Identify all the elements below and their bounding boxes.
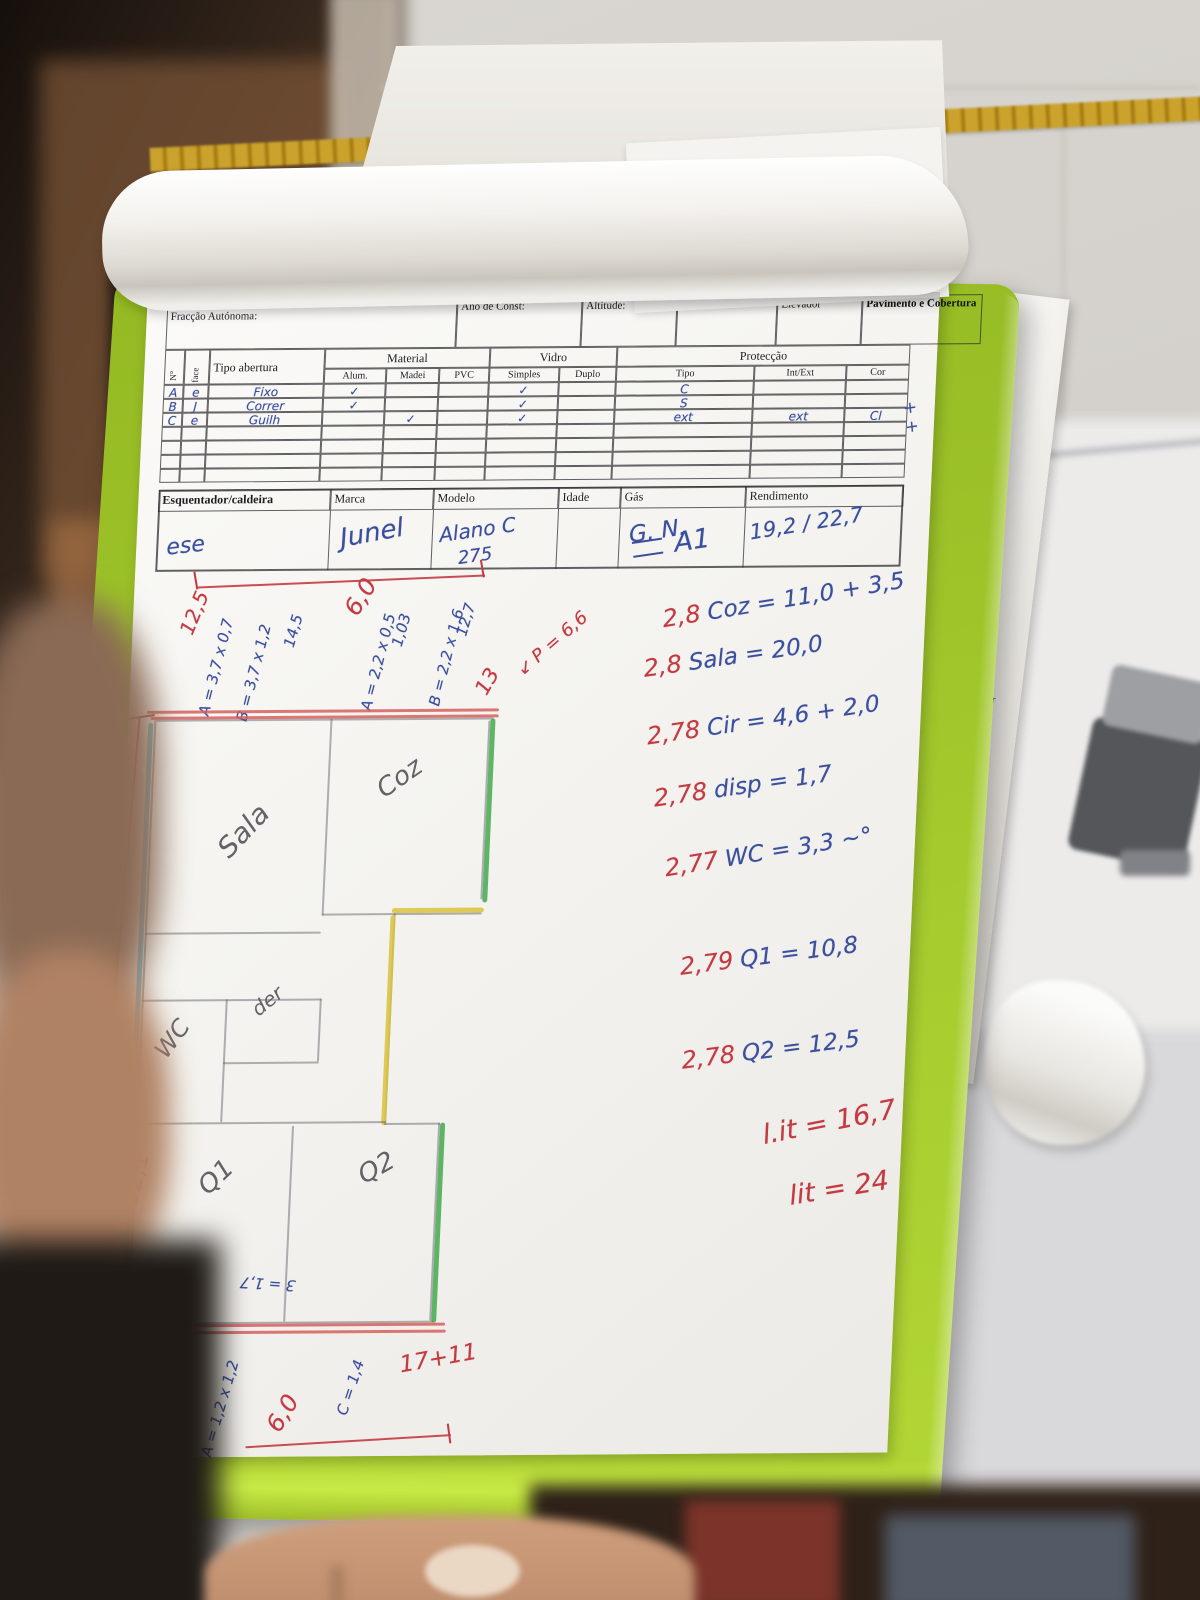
calc-height-prefix: 2,79: [679, 946, 735, 981]
calc-room-area: Coz = 11,0 + 3,5: [706, 568, 906, 626]
table-cell: [436, 439, 487, 453]
table-cell: ✓: [487, 410, 558, 424]
pencil-wall: [283, 1126, 294, 1322]
calc-height-prefix: 2,8: [661, 599, 702, 633]
table-cell: [434, 467, 485, 481]
table-cell: Guilh: [207, 412, 323, 427]
handwritten-entry: J: [193, 400, 197, 414]
table-cell: [753, 394, 846, 409]
total-line: lit = 24: [788, 1165, 891, 1212]
room-label-sala: Sala: [211, 797, 277, 864]
table-cell: [557, 410, 615, 424]
pencil-wall: [322, 719, 333, 916]
table-cell: [612, 451, 751, 466]
room-label-q1: Q1: [192, 1154, 240, 1201]
room-label-q2: Q2: [353, 1146, 400, 1191]
perimeter-value: P = 6,6: [528, 607, 592, 667]
side-measure: 14,5: [280, 612, 307, 649]
table-cell: [383, 425, 437, 439]
calc-room-area: Cir = 4,6 + 2,0: [706, 691, 881, 742]
table-cell: [750, 450, 843, 465]
calc-room-area: Q2 = 12,5: [741, 1026, 861, 1067]
heater-col-gas: Gás: [620, 486, 746, 509]
pencil-wall: [317, 999, 322, 1062]
table-cell: ✓: [384, 411, 438, 425]
survey-paper: Buach Olago Fracção Autónoma: Ano de Con…: [95, 284, 940, 1458]
bottom-left-shadow: [0, 1240, 220, 1600]
table-cell: [486, 438, 557, 452]
heater-col-idade: Idade: [558, 487, 621, 509]
table-cell: [843, 436, 907, 450]
table-cell: [321, 439, 384, 453]
a1-underline-marks: [632, 538, 663, 558]
table-cell: [845, 394, 909, 408]
table-cell: Cl: [844, 408, 908, 422]
handwritten-entry: ✓: [517, 397, 528, 411]
table-cell: [842, 450, 906, 464]
calc-line: 2,8Sala = 20,0: [642, 629, 824, 683]
tile-grout-vertical: [1062, 110, 1065, 460]
calc-line: 2,78disp = 1,7: [652, 759, 833, 813]
table-margin-note: + +: [903, 395, 936, 437]
red-crayon-line: [147, 708, 499, 713]
handwritten-entry: ext: [788, 409, 808, 423]
col-n: N°: [164, 350, 186, 385]
table-cell: ✓: [488, 396, 559, 410]
handwritten-entry: ✓: [517, 411, 528, 425]
col-n-label: N°: [168, 371, 178, 381]
table-cell: [613, 437, 752, 452]
rolled-over-page: [101, 154, 970, 312]
table-cell: [159, 469, 180, 483]
heater-col-esquentador: Esquentador/caldeira: [158, 489, 331, 512]
table-cell: J: [182, 399, 208, 413]
group-proteccao: Protecção: [617, 345, 911, 367]
table-cell: [181, 427, 207, 441]
wood-chair-red: [685, 1500, 840, 1600]
table-cell: [556, 438, 614, 452]
calc-height-prefix: 2,77: [663, 846, 719, 882]
col-tipo-abertura: Tipo abertura: [209, 349, 326, 385]
table-cell: [555, 452, 613, 466]
table-cell: [381, 467, 435, 481]
table-cell: Fixo: [208, 384, 324, 399]
table-cell: [319, 467, 382, 481]
plan-bottom-sum: 17+11: [398, 1339, 479, 1379]
heater-col-rendimento: Rendimento: [745, 485, 904, 508]
table-cell: [751, 422, 844, 437]
calc-room-area: disp = 1,7: [713, 761, 833, 804]
handwritten-entry: C: [168, 414, 177, 428]
table-cell: [320, 453, 383, 467]
handwritten-entry: e: [192, 386, 200, 400]
table-cell: [485, 452, 556, 466]
calc-height-prefix: 2,8: [642, 649, 683, 682]
handwritten-entry: A: [169, 386, 178, 400]
perimeter-note: ↙ P = 6,6: [513, 607, 592, 680]
calc-room-area: Q1 = 10,8: [739, 932, 859, 973]
sub-simples: Simples: [489, 367, 560, 382]
table-cell: [383, 439, 437, 453]
table-cell: [753, 380, 846, 395]
table-cell: [322, 411, 385, 425]
sub-cor: Cor: [846, 365, 910, 380]
table-cell: Correr: [207, 398, 323, 413]
table-cell: ✓: [488, 382, 559, 396]
handwritten-entry: ✓: [405, 412, 416, 426]
yellow-crayon-line: [392, 907, 484, 913]
sub-madei: Madei: [386, 368, 440, 383]
side-measure: 12,7: [452, 601, 479, 638]
plan-bottom-dimension-line: [246, 1434, 451, 1448]
table-cell: ✓: [323, 383, 386, 397]
calc-line: 2,78Q2 = 12,5: [681, 1024, 861, 1075]
table-cell: [205, 454, 321, 469]
table-cell: [160, 455, 181, 469]
table-cell: [611, 465, 750, 480]
table-cell: S: [615, 395, 754, 410]
phone-stand-foot: [1120, 850, 1190, 876]
table-cell: [558, 382, 616, 396]
table-cell: [484, 466, 555, 480]
table-cell: ✓: [322, 397, 385, 411]
total-line: l.it = 16,7: [761, 1094, 898, 1151]
photo-scene: 3 3 50 ambos guardar ModeDecPropCart v.1…: [0, 0, 1200, 1600]
table-cell: [845, 380, 909, 394]
calc-height-prefix: 2,78: [652, 777, 708, 813]
table-cell: C: [162, 413, 183, 427]
table-cell: [435, 453, 486, 467]
table-cell: [181, 441, 207, 455]
heater-col-marca: Marca: [330, 488, 434, 511]
col-face: face: [184, 350, 211, 385]
sub-tipo: Tipo: [616, 366, 755, 382]
table-cell: [436, 425, 487, 439]
table-cell: [385, 383, 439, 397]
plan-top-dimension-line: [198, 575, 485, 589]
sub-pvc: PVC: [439, 368, 490, 383]
plan-top-dim-tick-left: [193, 572, 198, 590]
fabric-gray: [885, 1515, 1135, 1600]
calc-height-prefix: 2,78: [646, 715, 702, 751]
table-cell: [841, 464, 905, 478]
handwritten-entry: B: [168, 400, 177, 414]
handwritten-entry: e: [191, 414, 199, 428]
table-cell: [161, 441, 182, 455]
thumb-nail: [425, 1545, 520, 1597]
table-cell: [613, 423, 752, 438]
pencil-wall: [145, 932, 321, 935]
calc-line: 2,78Cir = 4,6 + 2,0: [646, 689, 881, 751]
calc-room-area: WC = 3,3 ~°: [724, 823, 874, 873]
table-cell: [179, 469, 205, 483]
table-cell: [321, 425, 384, 439]
handwritten-entry: ✓: [518, 383, 529, 397]
table-cell: [206, 426, 322, 441]
table-cell: [204, 468, 320, 483]
group-vidro: Vidro: [489, 347, 617, 368]
calc-line: 2,8Coz = 11,0 + 3,5: [661, 566, 906, 633]
group-material: Material: [324, 348, 490, 369]
table-cell: [751, 436, 844, 451]
table-cell: e: [182, 413, 208, 427]
table-cell: [438, 383, 489, 397]
sub-intext: Int/Ext: [754, 365, 847, 381]
calc-height-prefix: 2,78: [681, 1040, 737, 1075]
table-cell: [382, 453, 436, 467]
table-cell: ext: [752, 408, 845, 423]
table-cell: A: [163, 385, 184, 399]
table-cell: [161, 427, 182, 441]
heater-value-tipo: ese: [166, 532, 206, 561]
table-cell: B: [162, 399, 183, 413]
handwritten-entry: Cl: [870, 409, 882, 423]
table-cell: [556, 424, 614, 438]
pencil-wall: [384, 1123, 440, 1125]
table-cell: C: [615, 381, 754, 396]
calc-room-area: Sala = 20,0: [688, 631, 824, 676]
yellow-crayon-line: [381, 915, 396, 1125]
col-face-label: face: [190, 368, 201, 383]
heater-col-modelo: Modelo: [433, 487, 559, 510]
handwritten-entry: C: [680, 382, 689, 396]
table-cell: [384, 397, 438, 411]
table-cell: [554, 466, 612, 480]
side-measure: 12,5: [175, 588, 214, 638]
room-label-coz: Coz: [371, 752, 427, 804]
table-cell: [438, 397, 489, 411]
pencil-wall: [223, 1062, 319, 1065]
finger-crease: [330, 1565, 344, 1600]
pencil-wall: [142, 999, 322, 1002]
table-cell: [437, 411, 488, 425]
table-cell: [180, 455, 206, 469]
table-cell: ext: [614, 409, 753, 424]
calc-line: 2,77WC = 3,3 ~°: [663, 821, 873, 883]
bottom-measure: C = 1,4: [333, 1358, 368, 1417]
table-cell: [558, 396, 616, 410]
table-cell: [486, 424, 557, 438]
pencil-wall: [220, 999, 228, 1122]
plan-bottom-dim-label: 6,0: [261, 1390, 305, 1437]
table-cell: [843, 422, 907, 436]
table-cell: [206, 440, 322, 455]
calc-line: 2,79Q1 = 10,8: [679, 930, 859, 981]
sub-alum: Alum.: [324, 368, 387, 383]
handwritten-entry: ext: [673, 410, 693, 424]
sub-duplo: Duplo: [559, 367, 617, 382]
handwritten-entry: S: [680, 396, 688, 410]
handwritten-entry: ✓: [349, 384, 360, 398]
handwritten-entry: ✓: [348, 398, 359, 412]
table-cell: [749, 464, 842, 479]
table-cell: e: [183, 385, 209, 399]
a1-label: A1: [673, 523, 711, 559]
